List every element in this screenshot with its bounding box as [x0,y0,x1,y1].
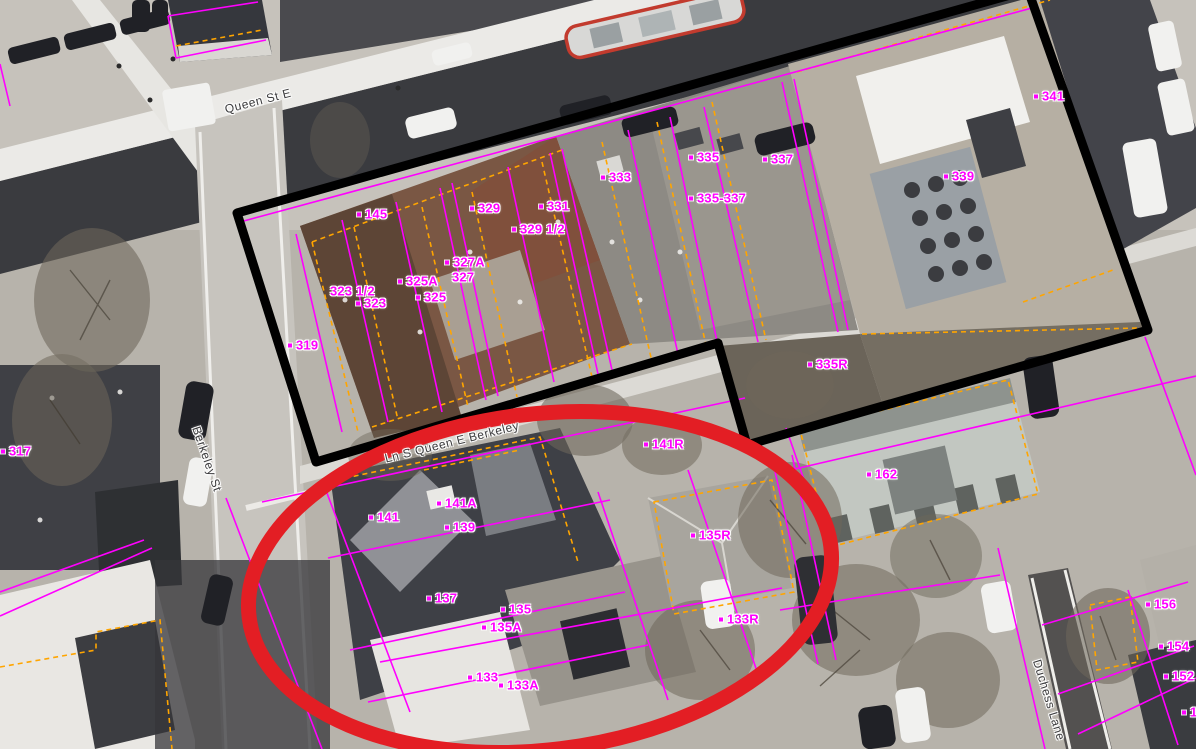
address-marker-dot [1,449,5,453]
address-marker-dot [763,157,767,161]
address-marker-dot [719,617,723,621]
address-label-317: 317 [1,444,31,459]
address-label-135r: 135R [691,528,731,543]
address-marker-dot [445,260,449,264]
address-marker-dot [482,625,486,629]
address-label-337: 337 [763,152,793,167]
address-text: 133 [476,670,498,685]
address-marker-dot [944,174,948,178]
address-label-327a: 327A [445,255,485,270]
address-marker-dot [808,362,812,366]
address-text: 327A [453,255,485,270]
address-label-135a: 135A [482,620,522,635]
address-label-341: 341 [1034,89,1064,104]
address-label-333: 333 [601,170,631,185]
address-label-325: 325 [416,290,446,305]
address-marker-dot [644,442,648,446]
address-text: 162 [875,467,897,482]
address-marker-dot [689,155,693,159]
address-text: 339 [952,169,974,184]
address-label-325a: 325A [398,274,438,289]
address-label-137: 137 [427,591,457,606]
address-label-133r: 133R [719,612,759,627]
address-label-335-337: 335-337 [689,191,746,206]
address-marker-dot [357,212,361,216]
address-label-145: 145 [357,207,387,222]
address-text: 325A [406,274,438,289]
address-marker-dot [369,515,373,519]
address-label-139: 139 [445,520,475,535]
address-marker-dot [398,279,402,283]
address-text: 1 [1190,705,1196,720]
address-marker-dot [1159,644,1163,648]
address-marker-dot [1164,674,1168,678]
address-text: 156 [1154,597,1176,612]
address-text: 317 [9,444,31,459]
address-marker-dot [689,196,693,200]
address-label-329-1-2: 329 1/2 [512,222,565,237]
address-text: 325 [424,290,446,305]
address-text: 329 1/2 [520,222,565,237]
address-text: 135 [509,602,531,617]
address-label-141r: 141R [644,437,684,452]
address-label-162: 162 [867,467,897,482]
address-marker-dot [470,206,474,210]
aerial-map-canvas[interactable]: Queen St EBerkeley StLn S Queen E Berkel… [0,0,1196,749]
address-label-335: 335 [689,150,719,165]
address-text: 139 [453,520,475,535]
address-marker-dot [356,301,360,305]
address-marker-dot [1182,710,1186,714]
address-text: 335-337 [697,191,746,206]
address-text: 135R [699,528,731,543]
address-text: 141R [652,437,684,452]
address-marker-dot [512,227,516,231]
address-label-323: 323 [356,296,386,311]
address-text: 331 [547,199,569,214]
address-label-133a: 133A [499,678,539,693]
address-label-327: 327 [452,270,474,285]
address-text: 137 [435,591,457,606]
address-marker-dot [691,533,695,537]
address-label-135: 135 [501,602,531,617]
address-text: 133R [727,612,759,627]
address-text: 341 [1042,89,1064,104]
address-label-156: 156 [1146,597,1176,612]
address-label-133: 133 [468,670,498,685]
address-text: 333 [609,170,631,185]
address-marker-dot [468,675,472,679]
address-label-141: 141 [369,510,399,525]
address-text: 335 [697,150,719,165]
address-marker-dot [288,343,292,347]
address-label-152: 152 [1164,669,1194,684]
address-label-319: 319 [288,338,318,353]
address-text: 319 [296,338,318,353]
address-label-141a: 141A [437,496,477,511]
address-label-154: 154 [1159,639,1189,654]
address-marker-dot [437,501,441,505]
address-text: 135A [490,620,522,635]
address-label-339: 339 [944,169,974,184]
address-marker-dot [499,683,503,687]
address-text: 337 [771,152,793,167]
address-text: 141 [377,510,399,525]
address-marker-dot [539,204,543,208]
address-marker-dot [501,607,505,611]
address-marker-dot [601,175,605,179]
address-marker-dot [427,596,431,600]
aerial-photo [0,0,1196,749]
address-text: 327 [452,270,474,285]
address-text: 335R [816,357,848,372]
address-marker-dot [445,525,449,529]
address-marker-dot [416,295,420,299]
address-text: 152 [1172,669,1194,684]
address-label-1: 1 [1182,705,1196,720]
address-label-329: 329 [470,201,500,216]
address-label-335r: 335R [808,357,848,372]
address-label-331: 331 [539,199,569,214]
address-marker-dot [1034,94,1038,98]
address-text: 323 [364,296,386,311]
address-text: 154 [1167,639,1189,654]
address-text: 145 [365,207,387,222]
address-text: 329 [478,201,500,216]
address-marker-dot [1146,602,1150,606]
address-marker-dot [867,472,871,476]
address-text: 141A [445,496,477,511]
address-text: 133A [507,678,539,693]
